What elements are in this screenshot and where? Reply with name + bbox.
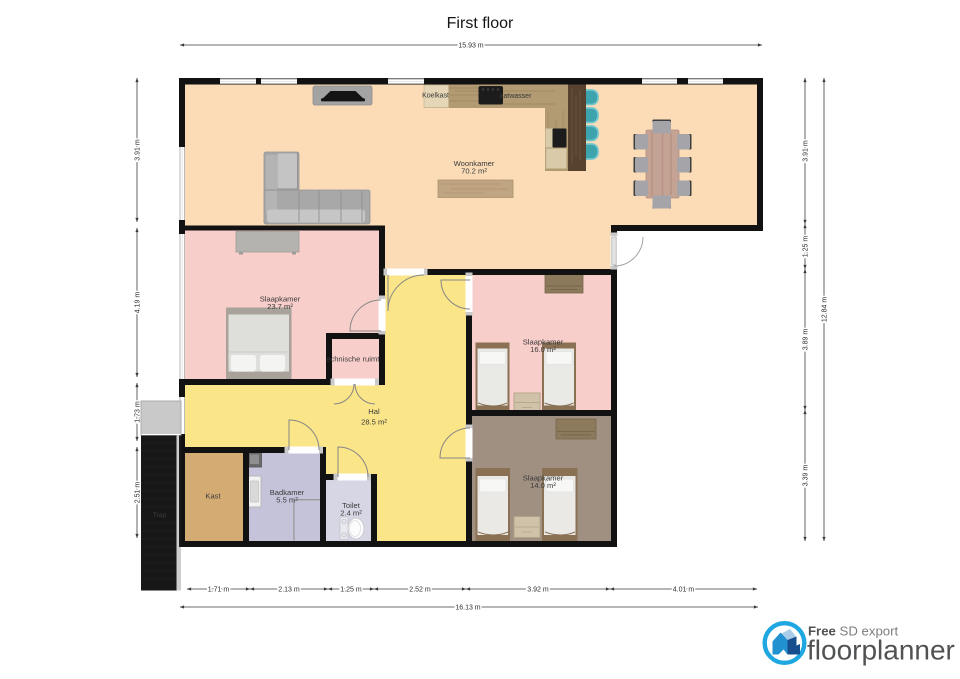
svg-text:4.19 m: 4.19 m <box>134 292 141 314</box>
svg-text:2.52 m: 2.52 m <box>409 586 431 593</box>
svg-text:16.13 m: 16.13 m <box>455 604 480 611</box>
svg-text:23.7 m²: 23.7 m² <box>267 302 293 311</box>
svg-text:First floor: First floor <box>447 15 514 32</box>
svg-text:floorplanner: floorplanner <box>807 635 955 666</box>
svg-text:3.89 m: 3.89 m <box>802 329 809 351</box>
svg-text:Kast: Kast <box>205 492 221 501</box>
svg-text:Hal: Hal <box>368 407 380 416</box>
svg-text:14.0 m²: 14.0 m² <box>530 481 556 490</box>
svg-text:16.0 m²: 16.0 m² <box>530 345 556 354</box>
svg-text:3.91 m: 3.91 m <box>134 139 141 161</box>
svg-text:2.13 m: 2.13 m <box>278 586 300 593</box>
svg-text:1.73 m: 1.73 m <box>134 401 141 423</box>
svg-text:aatwasser: aatwasser <box>500 93 533 100</box>
svg-text:1.25 m: 1.25 m <box>802 236 809 258</box>
svg-text:15.93 m: 15.93 m <box>458 42 483 49</box>
svg-text:2.51 m: 2.51 m <box>134 482 141 504</box>
svg-text:Technische ruimte: Technische ruimte <box>322 355 383 364</box>
svg-text:4.01 m: 4.01 m <box>673 586 695 593</box>
svg-text:Trap: Trap <box>153 512 167 519</box>
svg-text:70.2 m²: 70.2 m² <box>461 167 487 176</box>
svg-text:5.5 m²: 5.5 m² <box>276 496 298 505</box>
svg-text:3.91 m: 3.91 m <box>802 140 809 162</box>
svg-text:Koelkast: Koelkast <box>422 93 449 100</box>
svg-text:12.84 m: 12.84 m <box>821 297 828 322</box>
svg-text:2.4 m²: 2.4 m² <box>340 509 362 518</box>
svg-text:1.25 m: 1.25 m <box>340 586 362 593</box>
svg-text:1.71 m: 1.71 m <box>208 586 230 593</box>
svg-text:3.39 m: 3.39 m <box>802 465 809 487</box>
svg-text:3.92 m: 3.92 m <box>527 586 549 593</box>
svg-text:28.5 m²: 28.5 m² <box>361 418 387 427</box>
